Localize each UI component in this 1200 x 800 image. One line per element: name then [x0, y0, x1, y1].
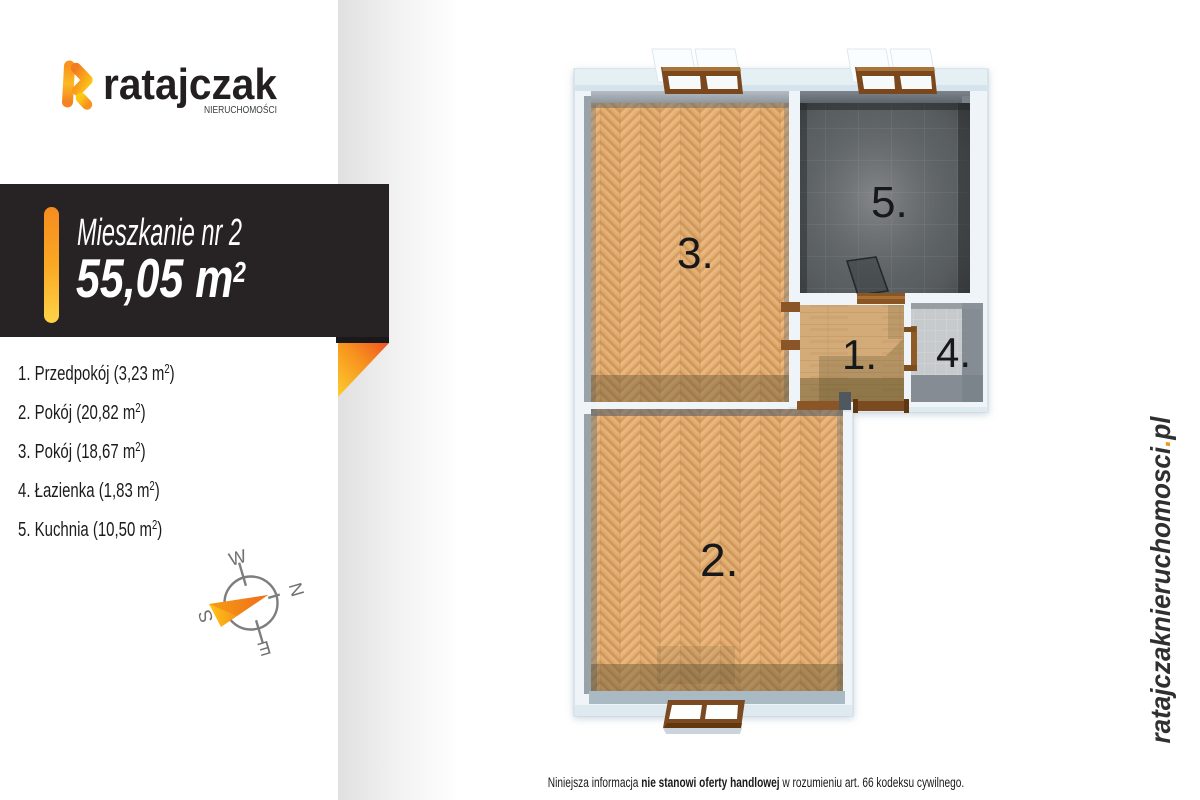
svg-text:3.: 3.: [677, 229, 714, 278]
svg-text:2.: 2.: [700, 534, 738, 586]
svg-text:1.: 1.: [842, 331, 877, 378]
svg-text:5.: 5.: [871, 178, 908, 227]
svg-text:4.: 4.: [936, 329, 971, 376]
